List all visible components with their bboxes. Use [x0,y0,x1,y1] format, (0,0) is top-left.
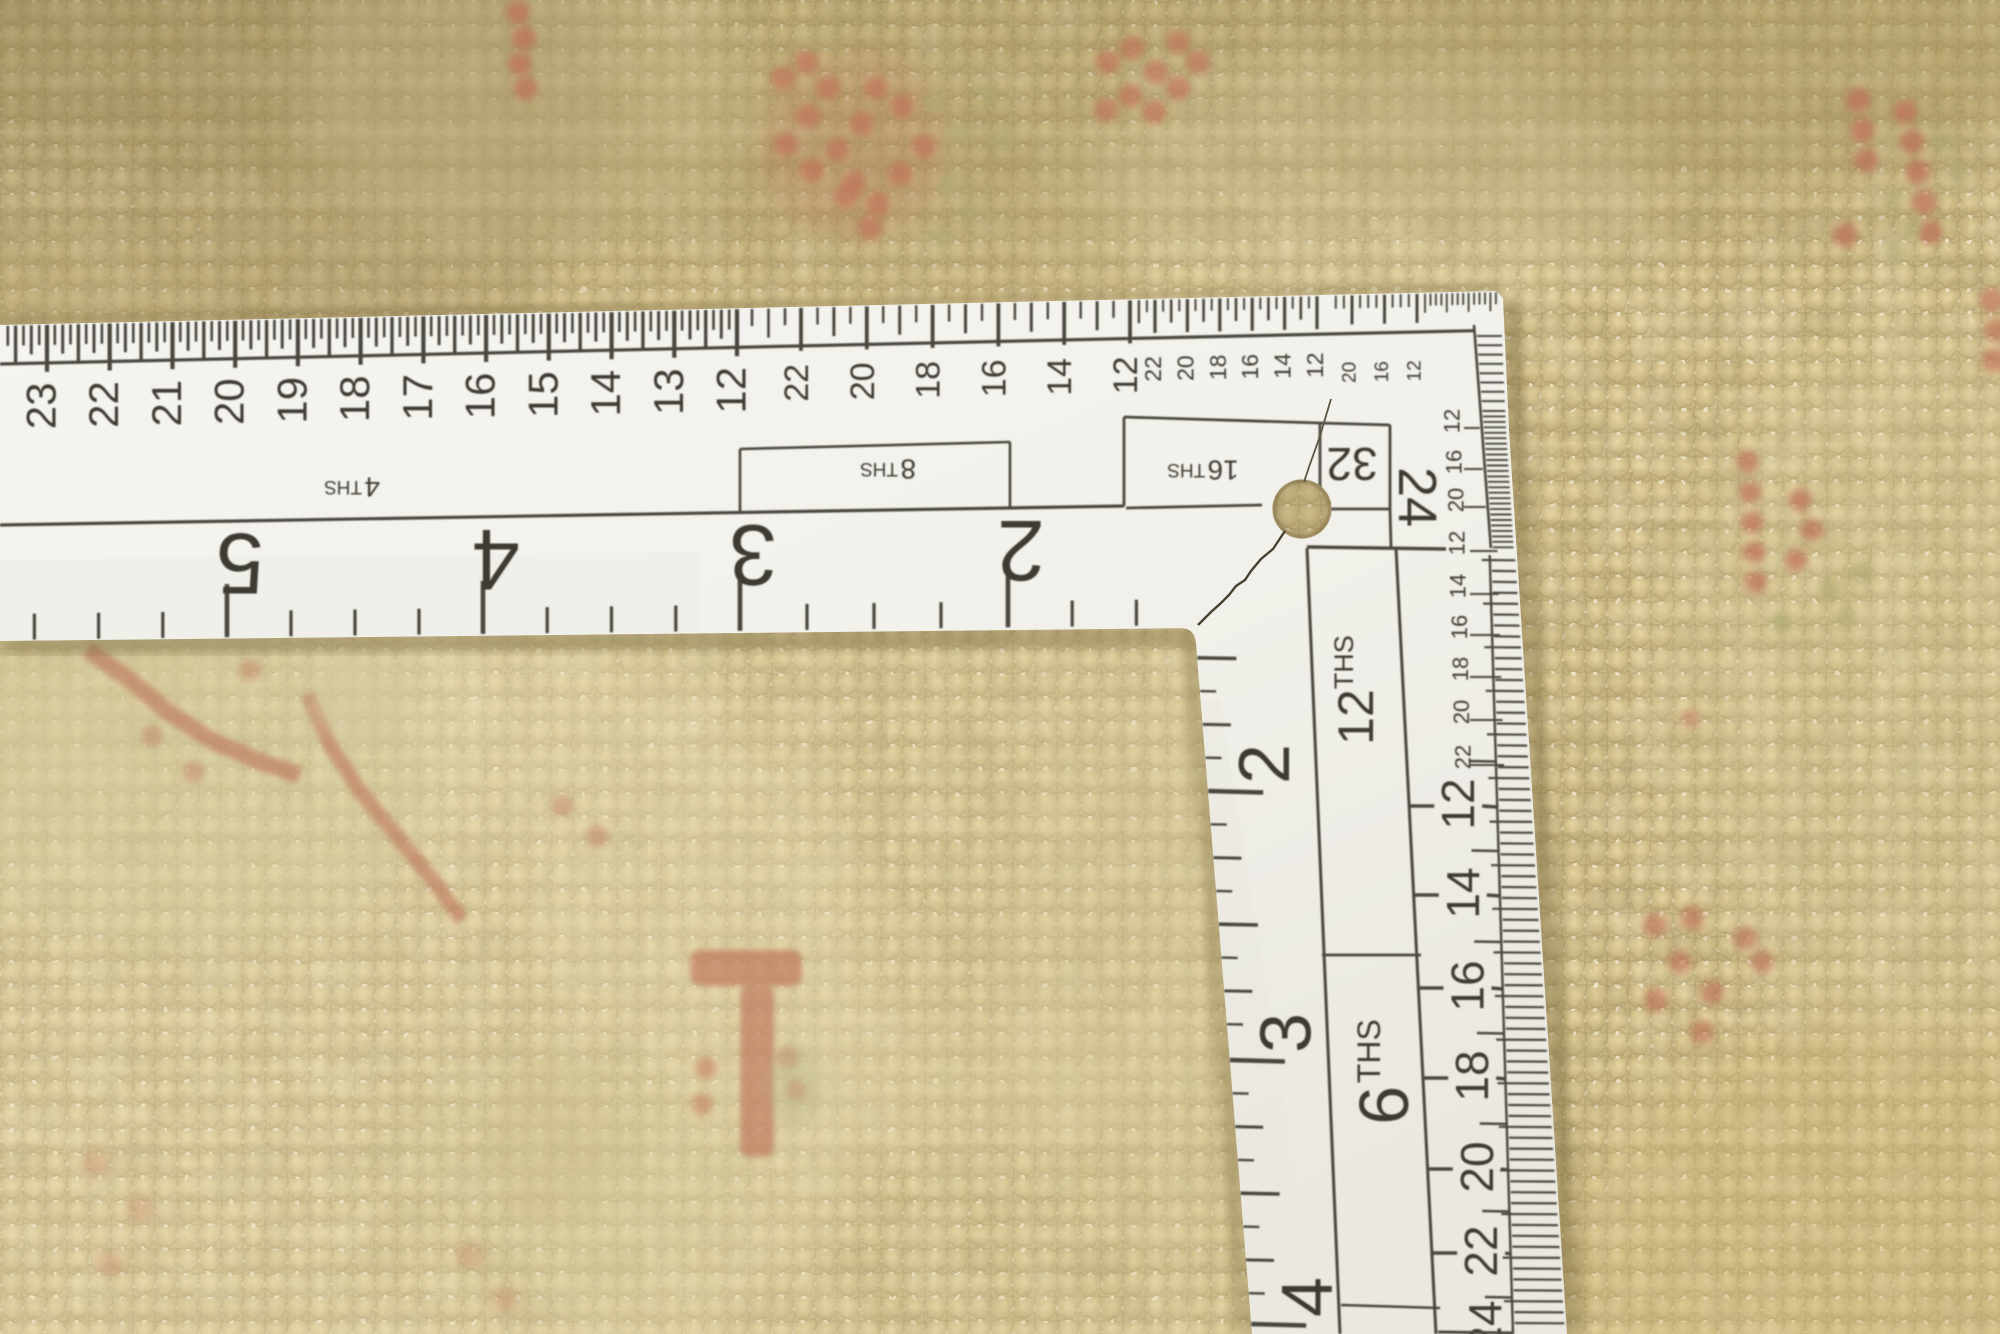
svg-text:20: 20 [844,362,882,400]
svg-text:14: 14 [1437,867,1489,918]
svg-text:20: 20 [206,378,253,425]
svg-text:22: 22 [80,381,127,428]
svg-text:20: 20 [1444,488,1469,512]
svg-text:4: 4 [1268,1277,1348,1317]
svg-text:3: 3 [729,507,777,603]
svg-text:22: 22 [778,364,816,402]
svg-text:13: 13 [645,368,692,415]
svg-text:3: 3 [1247,1013,1327,1053]
svg-text:20: 20 [1451,1141,1503,1192]
svg-text:18: 18 [1205,355,1231,381]
svg-text:12: 12 [1432,778,1484,829]
svg-text:20: 20 [1340,362,1361,383]
svg-text:5: 5 [216,515,264,611]
svg-text:12: 12 [1405,360,1426,381]
svg-text:17: 17 [394,374,441,421]
svg-text:18: 18 [331,375,378,422]
svg-text:2: 2 [997,502,1045,598]
svg-text:14: 14 [1446,574,1471,598]
svg-text:14: 14 [1041,358,1079,396]
svg-text:2: 2 [1225,744,1305,784]
svg-text:16: 16 [457,373,504,420]
svg-text:4: 4 [472,511,520,607]
svg-text:21: 21 [143,380,190,427]
svg-text:16: 16 [975,359,1013,397]
svg-text:12: 12 [708,367,755,414]
svg-text:24: 24 [1459,1300,1511,1334]
svg-text:15: 15 [519,371,566,418]
svg-text:22: 22 [1455,1225,1507,1276]
svg-text:22: 22 [1140,356,1166,382]
svg-text:18: 18 [910,361,948,399]
svg-text:16: 16 [1442,450,1467,474]
svg-text:14: 14 [1270,353,1296,379]
svg-text:18: 18 [1446,1050,1498,1101]
svg-text:16: 16 [1372,361,1393,382]
svg-text:20: 20 [1172,355,1198,381]
svg-text:32: 32 [1326,438,1377,490]
svg-text:16: 16 [1237,354,1263,380]
svg-text:14: 14 [582,370,629,417]
svg-text:16: 16 [1442,960,1494,1011]
svg-text:18: 18 [1448,657,1473,681]
svg-text:12: 12 [1302,352,1328,378]
svg-text:23: 23 [18,383,65,430]
svg-text:12: 12 [1445,531,1470,555]
svg-text:12: 12 [1440,409,1465,433]
svg-text:16: 16 [1447,615,1472,639]
svg-text:24: 24 [1387,467,1447,527]
svg-text:19: 19 [268,377,315,424]
